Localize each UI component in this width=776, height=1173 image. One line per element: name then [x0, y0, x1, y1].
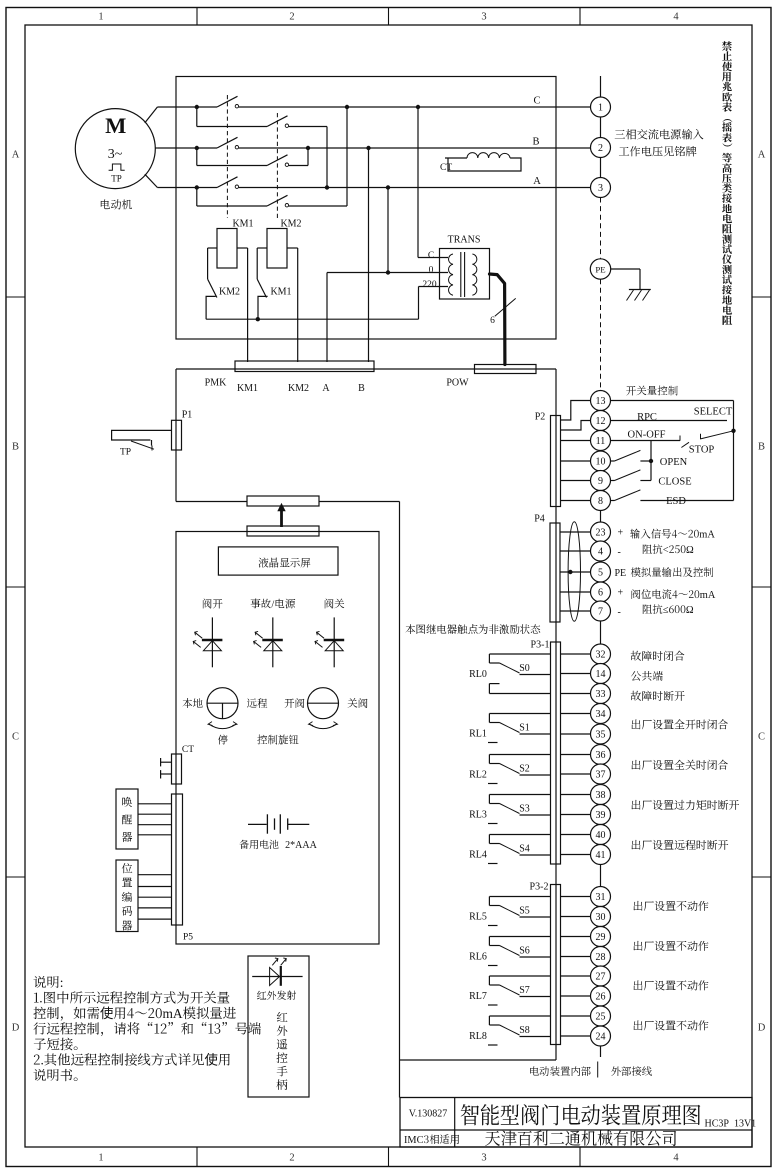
svg-text:本图继电器触点为非激励状态: 本图继电器触点为非激励状态: [405, 621, 541, 636]
svg-text:10: 10: [596, 457, 606, 468]
svg-text:C: C: [533, 96, 540, 107]
svg-text:电动机: 电动机: [100, 197, 133, 213]
svg-text:关阀: 关阀: [347, 696, 368, 711]
svg-text:阻: 阻: [722, 312, 732, 327]
svg-text:38: 38: [596, 790, 606, 801]
svg-text:220: 220: [422, 280, 437, 290]
svg-text:RL6: RL6: [469, 952, 487, 963]
svg-text:CLOSE: CLOSE: [658, 476, 691, 487]
svg-text:1: 1: [98, 1153, 103, 1164]
svg-text:阀位电流4～20mA: 阀位电流4～20mA: [631, 586, 716, 601]
svg-text:故障时闭合: 故障时闭合: [631, 648, 686, 664]
svg-text:三相交流电源输入: 三相交流电源输入: [614, 127, 704, 143]
svg-text:P4: P4: [534, 514, 545, 525]
svg-text:S4: S4: [519, 843, 530, 854]
svg-text:STOP: STOP: [689, 445, 715, 456]
svg-text:23: 23: [596, 528, 606, 539]
svg-text:33: 33: [596, 689, 606, 700]
svg-text:出厂设置不动作: 出厂设置不动作: [633, 938, 709, 954]
svg-text:出厂设置远程时断开: 出厂设置远程时断开: [631, 837, 729, 853]
svg-text:红外发射: 红外发射: [257, 987, 297, 1002]
svg-text:开关量控制: 开关量控制: [626, 384, 679, 399]
svg-text:液晶显示屏: 液晶显示屏: [258, 556, 311, 571]
svg-text:远程: 远程: [247, 696, 268, 711]
svg-text:出厂设置不动作: 出厂设置不动作: [633, 898, 709, 914]
svg-text:40: 40: [596, 830, 606, 841]
svg-text:4: 4: [673, 1153, 679, 1164]
svg-text:阀关: 阀关: [324, 597, 345, 612]
svg-text:11: 11: [596, 436, 606, 447]
svg-text:出厂设置不动作: 出厂设置不动作: [633, 978, 709, 994]
svg-text:RL7: RL7: [469, 991, 487, 1002]
svg-text:8: 8: [598, 496, 603, 507]
svg-text:RL5: RL5: [469, 912, 487, 923]
svg-text:POW: POW: [446, 378, 469, 389]
svg-text:S5: S5: [519, 905, 530, 916]
svg-text:3: 3: [481, 12, 486, 23]
svg-text:41: 41: [596, 850, 606, 861]
svg-text:3~: 3~: [108, 147, 123, 162]
svg-text:S3: S3: [519, 803, 530, 814]
svg-text:说明书。: 说明书。: [33, 1065, 87, 1084]
svg-text:-: -: [618, 547, 621, 558]
svg-text:RL8: RL8: [469, 1031, 487, 1042]
svg-text:RL1: RL1: [469, 729, 487, 740]
svg-text:P3-1: P3-1: [531, 640, 550, 651]
svg-text:+: +: [618, 588, 624, 599]
svg-text:OPEN: OPEN: [660, 457, 688, 468]
svg-text:CT: CT: [182, 745, 194, 755]
svg-text:2*AAA: 2*AAA: [285, 840, 317, 851]
svg-text:KM2: KM2: [288, 383, 309, 394]
svg-text:D: D: [758, 1023, 766, 1034]
svg-text:S7: S7: [519, 985, 530, 996]
svg-text:ESD: ESD: [666, 496, 686, 507]
svg-text:阻抗<250Ω: 阻抗<250Ω: [642, 541, 694, 556]
svg-text:34: 34: [596, 709, 606, 720]
svg-text:TP: TP: [111, 174, 122, 184]
svg-text:SELECT: SELECT: [694, 407, 733, 418]
svg-text:S8: S8: [519, 1025, 530, 1036]
svg-text:6: 6: [490, 316, 495, 326]
svg-text:A: A: [533, 176, 541, 187]
svg-text:31: 31: [596, 892, 606, 903]
svg-text:公共端: 公共端: [631, 668, 664, 684]
svg-text:IMC3相适用: IMC3相适用: [404, 1131, 460, 1146]
svg-text:7: 7: [598, 607, 603, 618]
svg-text:PE: PE: [615, 568, 627, 579]
svg-text:柄: 柄: [276, 1077, 288, 1093]
svg-text:12: 12: [596, 416, 606, 427]
svg-text:醒: 醒: [122, 812, 133, 828]
svg-text:B: B: [12, 442, 19, 453]
svg-text:B: B: [358, 383, 365, 394]
svg-text:TRANS: TRANS: [448, 235, 481, 246]
svg-text:4: 4: [598, 547, 603, 558]
svg-text:出厂设置过力矩时断开: 出厂设置过力矩时断开: [631, 797, 740, 813]
svg-text:CT: CT: [440, 163, 452, 173]
svg-text:TP: TP: [120, 448, 131, 458]
svg-text:开阀: 开阀: [284, 696, 305, 711]
svg-text:24: 24: [596, 1032, 606, 1043]
svg-text:工作电压见铭牌: 工作电压见铭牌: [618, 143, 696, 159]
svg-text:2: 2: [289, 12, 294, 23]
svg-text:RL2: RL2: [469, 770, 487, 781]
svg-text:C: C: [428, 251, 434, 261]
svg-text:6: 6: [598, 588, 603, 599]
svg-text:RL4: RL4: [469, 850, 487, 861]
svg-text:13: 13: [596, 396, 606, 407]
svg-text:器: 器: [122, 829, 133, 845]
svg-text:本地: 本地: [182, 696, 203, 711]
svg-text:P2: P2: [535, 412, 546, 423]
svg-text:停: 停: [218, 733, 229, 748]
svg-text:天津百利二通机械有限公司: 天津百利二通机械有限公司: [485, 1126, 678, 1150]
svg-text:RL3: RL3: [469, 810, 487, 821]
svg-text:-: -: [618, 607, 621, 618]
svg-text:备用电池: 备用电池: [239, 836, 279, 851]
svg-text:25: 25: [596, 1012, 606, 1023]
svg-text:A: A: [758, 150, 766, 161]
svg-text:S6: S6: [519, 945, 530, 956]
svg-text:32: 32: [596, 650, 606, 661]
svg-text:PMK: PMK: [205, 378, 227, 389]
svg-text:KM1: KM1: [232, 219, 253, 230]
svg-text:5: 5: [598, 568, 603, 579]
svg-text:器: 器: [122, 917, 133, 933]
svg-text:3: 3: [598, 183, 603, 194]
svg-text:出厂设置不动作: 出厂设置不动作: [633, 1017, 709, 1033]
svg-text:1: 1: [598, 103, 603, 114]
svg-text:M: M: [105, 113, 126, 138]
svg-text:2: 2: [289, 1153, 294, 1164]
svg-text:C: C: [758, 732, 765, 743]
svg-text:26: 26: [596, 992, 606, 1003]
svg-text:KM1: KM1: [270, 287, 291, 298]
svg-text:模拟量输出及控制: 模拟量输出及控制: [631, 564, 715, 579]
svg-text:故障时断开: 故障时断开: [631, 688, 686, 704]
svg-text:S2: S2: [519, 763, 530, 774]
svg-text:事故/电源: 事故/电源: [250, 597, 295, 612]
svg-text:RL0: RL0: [469, 669, 487, 680]
svg-text:A: A: [322, 383, 330, 394]
svg-text:出厂设置全关时闭合: 出厂设置全关时闭合: [631, 757, 729, 773]
svg-text:39: 39: [596, 810, 606, 821]
svg-text:S1: S1: [519, 722, 530, 733]
svg-text:27: 27: [596, 972, 606, 983]
svg-text:RPC: RPC: [637, 412, 657, 423]
svg-text:4: 4: [673, 12, 679, 23]
svg-text:1: 1: [98, 12, 103, 23]
svg-text:C: C: [12, 732, 19, 743]
svg-text:D: D: [12, 1023, 20, 1034]
svg-text:29: 29: [596, 932, 606, 943]
svg-text:A: A: [12, 150, 20, 161]
svg-text:P1: P1: [182, 410, 193, 421]
svg-text:HC3P 13V1: HC3P 13V1: [705, 1119, 757, 1130]
svg-text:ON-OFF: ON-OFF: [628, 430, 666, 441]
svg-text:阀开: 阀开: [202, 597, 223, 612]
svg-text:控制旋钮: 控制旋钮: [257, 733, 299, 748]
svg-text:9: 9: [598, 476, 603, 487]
svg-text:P5: P5: [183, 933, 193, 943]
svg-text:P3-2: P3-2: [530, 882, 549, 893]
svg-text:电动装置内部: 电动装置内部: [529, 1063, 592, 1078]
svg-text:PE: PE: [595, 264, 605, 274]
svg-text:阻抗≤600Ω: 阻抗≤600Ω: [642, 601, 694, 616]
svg-text:30: 30: [596, 912, 606, 923]
svg-text:36: 36: [596, 750, 606, 761]
svg-text:35: 35: [596, 730, 606, 741]
svg-text:输入信号4～20mA: 输入信号4～20mA: [630, 525, 715, 540]
svg-text:+: +: [618, 528, 624, 539]
svg-text:KM2: KM2: [280, 219, 301, 230]
svg-text:B: B: [532, 137, 539, 148]
svg-text:14: 14: [596, 669, 606, 680]
svg-text:3: 3: [481, 1153, 486, 1164]
svg-text:外部接线: 外部接线: [611, 1063, 653, 1078]
svg-text:KM1: KM1: [237, 383, 258, 394]
svg-text:37: 37: [596, 770, 606, 781]
svg-text:KM2: KM2: [219, 287, 240, 298]
svg-text:S0: S0: [519, 663, 530, 674]
svg-text:0: 0: [429, 266, 434, 276]
svg-text:V.130827: V.130827: [409, 1109, 447, 1120]
svg-text:出厂设置全开时闭合: 出厂设置全开时闭合: [631, 716, 729, 732]
svg-text:2: 2: [598, 143, 603, 154]
svg-text:B: B: [758, 442, 765, 453]
svg-text:28: 28: [596, 952, 606, 963]
svg-text:唤: 唤: [122, 794, 133, 810]
